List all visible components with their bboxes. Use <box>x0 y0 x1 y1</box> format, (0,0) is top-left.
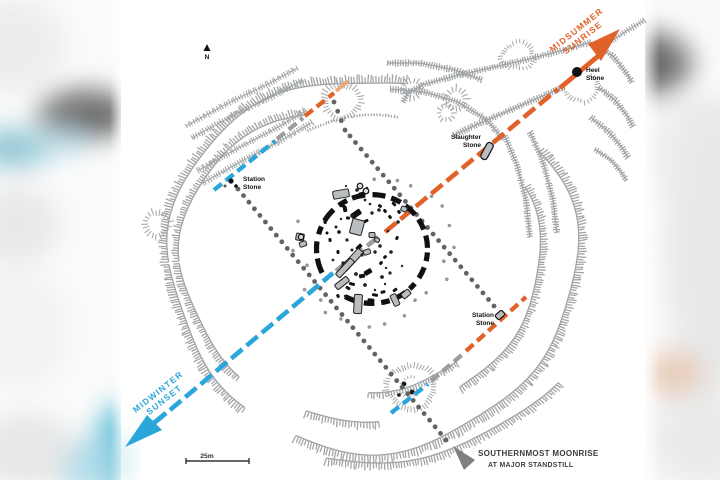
svg-text:Stone: Stone <box>586 75 604 82</box>
svg-text:SOUTHERNMOST MOONRISE: SOUTHERNMOST MOONRISE <box>478 449 599 458</box>
svg-text:Heel: Heel <box>586 67 600 74</box>
svg-text:Stone: Stone <box>463 142 481 149</box>
svg-text:N: N <box>205 54 210 61</box>
svg-text:AT MAJOR STANDSTILL: AT MAJOR STANDSTILL <box>488 462 573 469</box>
svg-text:Stone: Stone <box>243 184 261 191</box>
svg-text:Station: Station <box>243 176 265 183</box>
svg-text:Stone: Stone <box>476 320 494 327</box>
svg-text:25m: 25m <box>200 453 214 460</box>
svg-text:Slaughter: Slaughter <box>451 134 481 141</box>
svg-text:Station: Station <box>472 312 494 319</box>
